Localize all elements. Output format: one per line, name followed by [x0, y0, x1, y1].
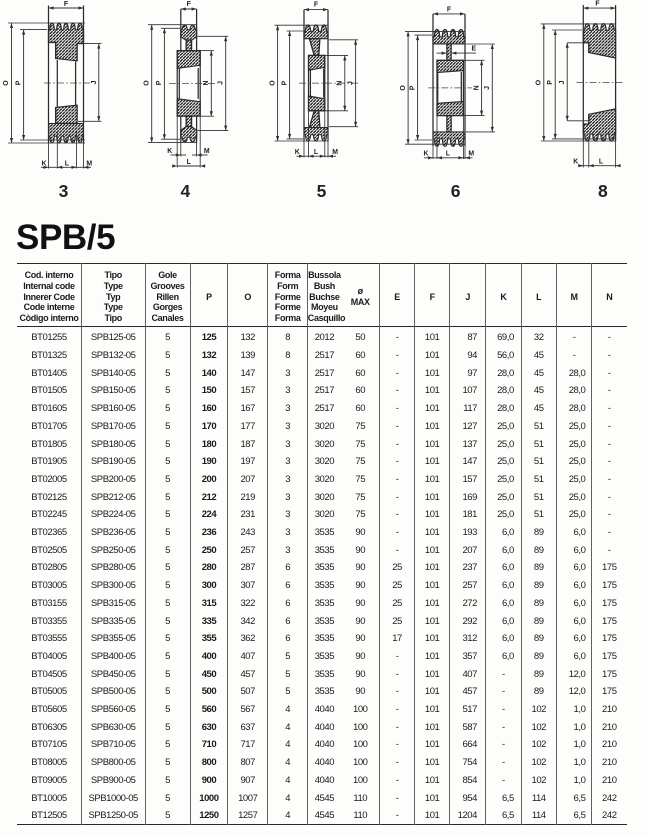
svg-text:F: F: [64, 1, 68, 8]
svg-text:J: J: [559, 80, 566, 84]
svg-text:K: K: [42, 160, 47, 167]
svg-text:O: O: [3, 80, 10, 86]
svg-text:P: P: [409, 85, 416, 90]
svg-text:L: L: [65, 160, 69, 167]
svg-text:F: F: [595, 1, 599, 8]
svg-text:M: M: [332, 149, 338, 156]
svg-text:N: N: [474, 85, 481, 90]
svg-text:J: J: [91, 80, 98, 84]
svg-text:4: 4: [181, 181, 191, 201]
svg-text:5: 5: [317, 181, 327, 201]
svg-text:E: E: [471, 45, 476, 52]
svg-text:L: L: [187, 159, 191, 166]
svg-text:K: K: [295, 149, 300, 156]
svg-text:M: M: [204, 148, 210, 155]
svg-text:P: P: [547, 80, 554, 85]
svg-text:F: F: [447, 7, 451, 14]
svg-text:N: N: [203, 80, 210, 85]
svg-text:O: O: [143, 80, 150, 86]
svg-text:O: O: [269, 80, 276, 86]
svg-text:L: L: [446, 150, 450, 157]
svg-text:L: L: [314, 149, 318, 156]
svg-text:J: J: [484, 86, 491, 90]
svg-text:J: J: [347, 81, 354, 85]
svg-text:N: N: [337, 81, 344, 86]
svg-text:M: M: [86, 160, 92, 167]
svg-text:J: J: [218, 81, 225, 85]
svg-text:F: F: [187, 1, 191, 8]
svg-text:K: K: [167, 148, 172, 155]
svg-text:P: P: [15, 80, 22, 85]
svg-text:K: K: [573, 158, 578, 165]
svg-text:O: O: [536, 79, 543, 85]
svg-text:3: 3: [59, 181, 69, 201]
svg-text:K: K: [424, 150, 429, 157]
svg-text:L: L: [599, 158, 603, 165]
svg-text:M: M: [468, 150, 474, 157]
svg-text:P: P: [156, 80, 163, 85]
svg-text:P: P: [281, 80, 288, 85]
svg-text:8: 8: [598, 181, 608, 201]
svg-text:O: O: [400, 85, 407, 91]
svg-text:6: 6: [451, 181, 461, 201]
svg-text:F: F: [314, 2, 318, 9]
